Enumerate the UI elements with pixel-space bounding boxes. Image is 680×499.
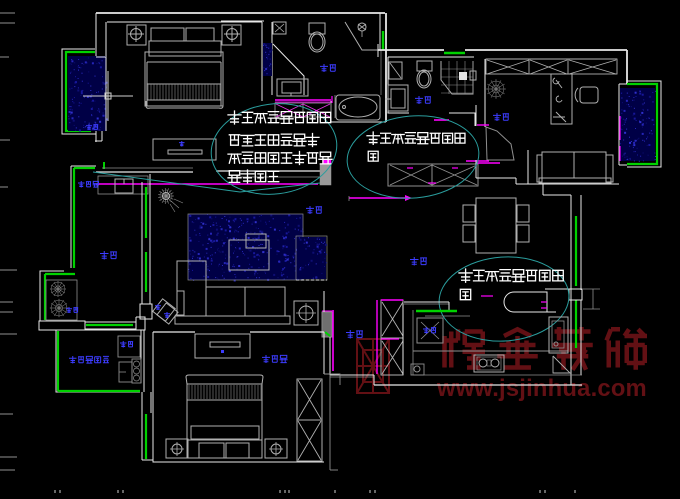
svg-text:www.jsjinhua.com: www.jsjinhua.com (436, 375, 647, 402)
